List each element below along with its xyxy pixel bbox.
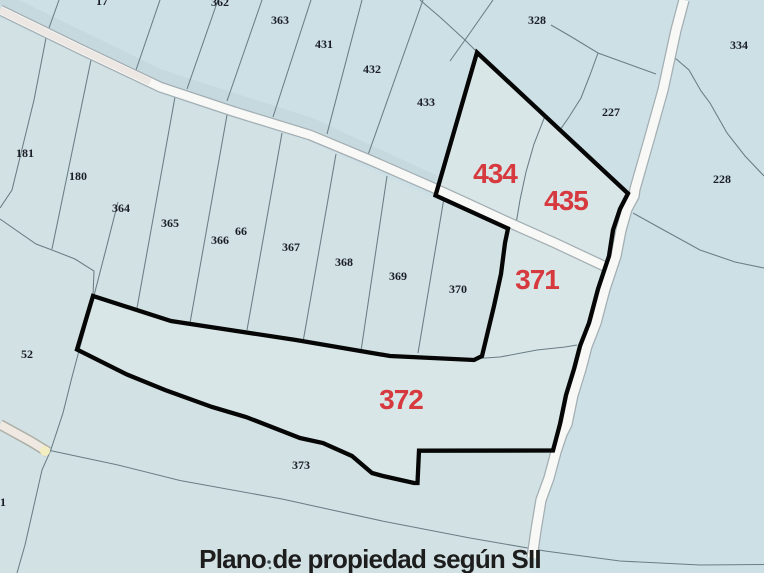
svg-text:228: 228 xyxy=(713,172,731,186)
svg-text:17: 17 xyxy=(96,0,108,8)
svg-text:366: 366 xyxy=(211,233,229,247)
svg-text:227: 227 xyxy=(602,105,620,119)
svg-text:433: 433 xyxy=(417,95,435,109)
svg-text:369: 369 xyxy=(389,269,407,283)
svg-text:371: 371 xyxy=(515,264,559,295)
svg-text:363: 363 xyxy=(271,13,289,27)
svg-text:1: 1 xyxy=(0,495,6,509)
svg-text:Plano de propiedad según SII: Plano de propiedad según SII xyxy=(199,544,541,573)
svg-text:365: 365 xyxy=(161,216,179,230)
svg-text:181: 181 xyxy=(16,146,34,160)
svg-text:432: 432 xyxy=(363,62,381,76)
svg-text:370: 370 xyxy=(449,282,467,296)
svg-text:435: 435 xyxy=(544,185,588,216)
svg-text:373: 373 xyxy=(292,458,310,472)
svg-text:180: 180 xyxy=(69,169,87,183)
svg-text:328: 328 xyxy=(528,13,546,27)
svg-text:364: 364 xyxy=(112,201,130,215)
svg-text:368: 368 xyxy=(335,255,353,269)
svg-text:334: 334 xyxy=(730,38,748,52)
svg-text:434: 434 xyxy=(473,158,518,189)
svg-text:362: 362 xyxy=(211,0,229,9)
svg-text:367: 367 xyxy=(282,240,300,254)
svg-text:372: 372 xyxy=(379,384,423,415)
svg-text:431: 431 xyxy=(315,37,333,51)
svg-text:66: 66 xyxy=(235,224,247,238)
svg-text:52: 52 xyxy=(21,347,33,361)
